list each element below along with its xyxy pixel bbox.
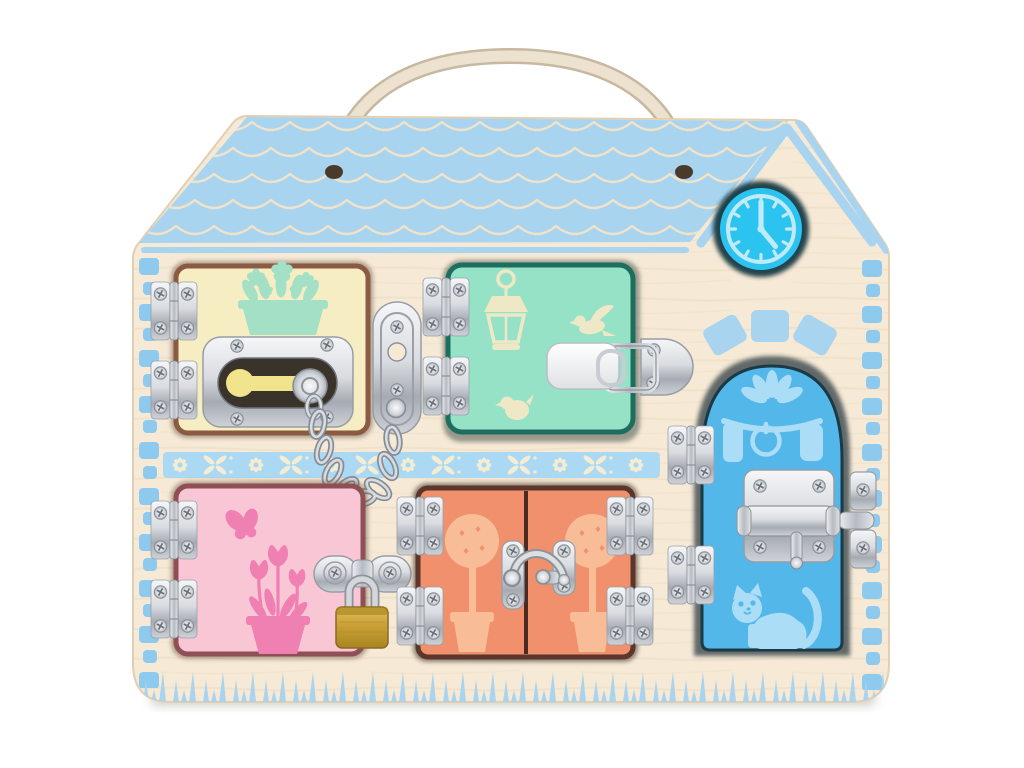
door-bottom-center	[397, 483, 653, 662]
roof-shingle-pattern	[139, 117, 788, 243]
hinge	[423, 278, 469, 336]
door-top-left	[151, 261, 373, 438]
flower-band-motifs	[163, 452, 660, 478]
hinge	[397, 587, 443, 645]
hinge	[397, 497, 443, 555]
flower-band	[163, 452, 660, 478]
hinge	[668, 546, 714, 604]
eaves-line	[141, 247, 689, 253]
hinge	[151, 501, 197, 559]
hinge	[607, 587, 653, 645]
grass-border	[140, 668, 884, 702]
photo-stage	[0, 0, 1024, 768]
barrel-bolt	[737, 470, 876, 569]
track-hole	[388, 343, 406, 361]
door-panel-print	[723, 423, 743, 462]
hinge	[151, 282, 197, 340]
hinge	[151, 580, 197, 638]
bolt-cylinder	[737, 506, 840, 536]
rope-hole	[325, 165, 343, 179]
door-panel-print	[800, 424, 823, 461]
rope-hole	[675, 165, 693, 179]
chain-slide-lock	[203, 337, 353, 427]
hasp-screw	[329, 567, 341, 579]
hinge	[607, 497, 653, 555]
hinge	[423, 357, 469, 415]
chain-track-plate	[373, 302, 421, 434]
hinge	[668, 426, 714, 484]
chain-ball-end	[387, 399, 406, 418]
bolt-rod	[838, 512, 874, 529]
hinge	[151, 361, 197, 419]
clock	[713, 181, 809, 277]
